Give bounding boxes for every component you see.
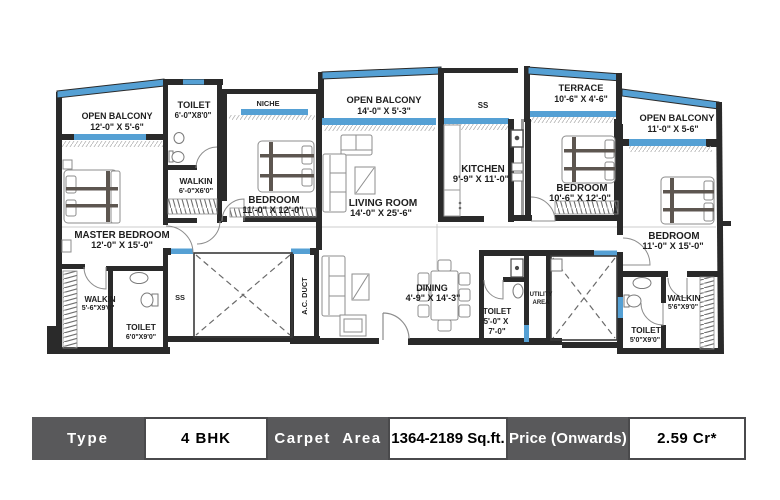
svg-text:DINING: DINING (416, 283, 448, 293)
svg-text:TOILET: TOILET (631, 325, 662, 335)
svg-text:14'-0" X 5'-3": 14'-0" X 5'-3" (357, 106, 411, 116)
svg-text:UTILITY: UTILITY (530, 292, 553, 298)
svg-text:WALKIN: WALKIN (179, 176, 212, 186)
svg-text:10'-6" X 12'-0": 10'-6" X 12'-0" (549, 193, 611, 203)
svg-text:AREA: AREA (532, 300, 550, 306)
svg-text:TERRACE: TERRACE (559, 83, 604, 93)
svg-text:6'0"X9'0": 6'0"X9'0" (126, 334, 156, 341)
svg-text:11'-0" X 12'-0": 11'-0" X 12'-0" (242, 205, 303, 215)
svg-text:5'-0" X: 5'-0" X (484, 317, 509, 326)
svg-text:14'-0" X 25'-6": 14'-0" X 25'-6" (350, 208, 412, 218)
svg-text:7'-0": 7'-0" (488, 327, 505, 336)
svg-text:OPEN BALCONY: OPEN BALCONY (82, 111, 153, 121)
svg-text:10'-6" X 4'-6": 10'-6" X 4'-6" (554, 94, 608, 104)
svg-text:OPEN BALCONY: OPEN BALCONY (640, 113, 716, 123)
svg-text:9'-9" X 11'-0": 9'-9" X 11'-0" (453, 174, 509, 184)
svg-text:SS: SS (175, 293, 185, 302)
svg-text:TOILET: TOILET (483, 307, 511, 316)
svg-text:A.C. DUCT: A.C. DUCT (300, 277, 309, 315)
svg-text:WALKIN: WALKIN (84, 295, 115, 304)
svg-text:TOILET: TOILET (178, 100, 211, 110)
svg-text:SS: SS (478, 101, 489, 110)
svg-text:12'-0" X 5'-6": 12'-0" X 5'-6" (90, 122, 144, 132)
svg-text:OPEN BALCONY: OPEN BALCONY (347, 95, 423, 105)
svg-text:TOILET: TOILET (126, 322, 157, 332)
svg-text:WALKIN: WALKIN (667, 293, 700, 303)
svg-text:6'-0"X6'0": 6'-0"X6'0" (179, 186, 214, 195)
svg-text:5'0"X9'0": 5'0"X9'0" (630, 337, 660, 344)
svg-text:11'-0" X 15'-0": 11'-0" X 15'-0" (642, 241, 703, 251)
svg-text:12'-0" X 15'-0": 12'-0" X 15'-0" (91, 240, 153, 250)
svg-text:5'-6"X9'0": 5'-6"X9'0" (82, 305, 115, 312)
svg-text:4'-9" X 14'-3": 4'-9" X 14'-3" (406, 293, 461, 303)
svg-text:11'-0" X 5-6": 11'-0" X 5-6" (647, 124, 698, 134)
svg-text:5'6"X9'0": 5'6"X9'0" (668, 304, 698, 311)
svg-text:6'-0"X8'0": 6'-0"X8'0" (175, 111, 212, 120)
svg-text:NICHE: NICHE (257, 99, 280, 108)
